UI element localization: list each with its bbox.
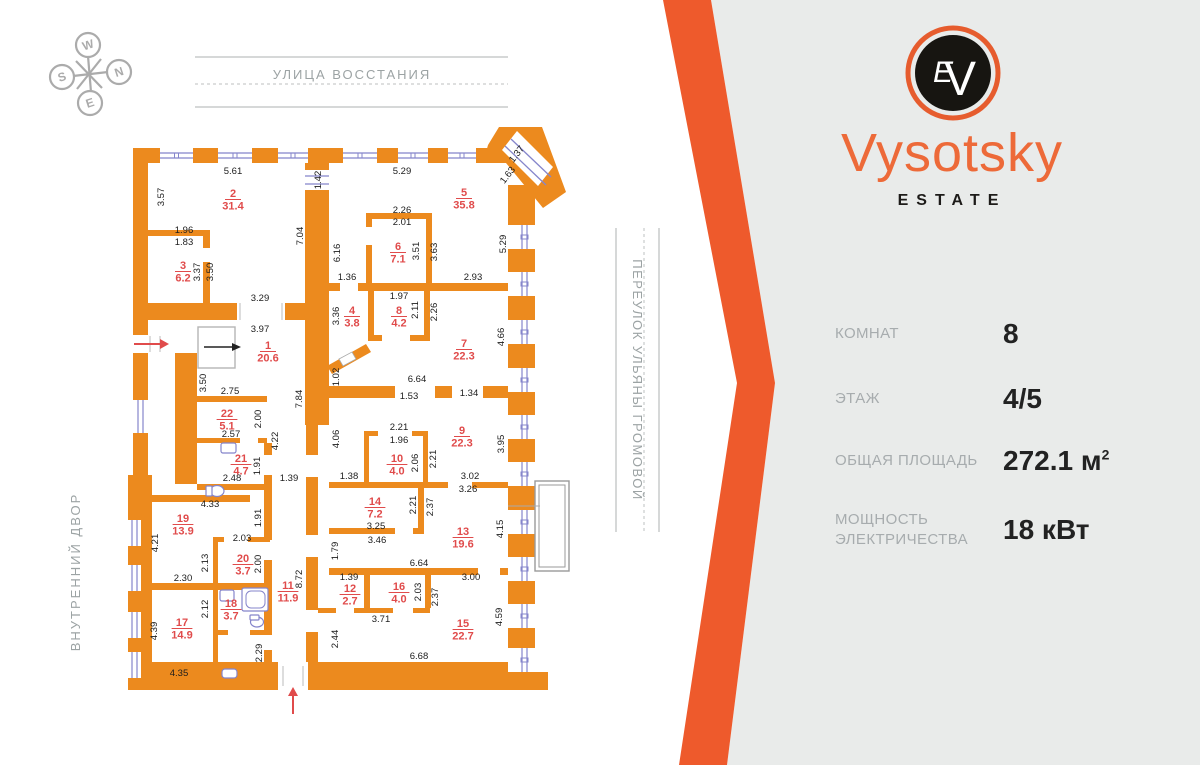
dimension-label: 2.13 (200, 554, 211, 573)
info-value: 8 (1003, 318, 1019, 350)
room-label: 1522.7 (452, 618, 473, 643)
room-label: 120.6 (257, 340, 278, 365)
room-number: 9 (459, 425, 465, 437)
dimension-label: 4.39 (149, 622, 160, 641)
dimension-label: 2.44 (330, 630, 341, 649)
dimension-label: 3.57 (156, 188, 167, 207)
window-gap (128, 612, 141, 638)
dimension-label: 1.96 (390, 435, 409, 446)
dimension-label: 3.26 (459, 484, 478, 495)
street-name-top: УЛИЦА ВОССТАНИЯ (273, 67, 432, 82)
dimension-label: 4.21 (150, 534, 161, 553)
wall (141, 495, 250, 502)
room-number: 2 (230, 188, 236, 200)
dimension-label: 1.83 (175, 237, 194, 248)
room-label: 1319.6 (452, 526, 473, 551)
wall (413, 608, 430, 613)
room-label: 225.1 (217, 408, 238, 433)
wall (366, 213, 372, 227)
dimension-label: 2.26 (429, 303, 440, 322)
dimension-label: 3.50 (205, 263, 216, 282)
room-number: 19 (177, 513, 189, 525)
wall (264, 650, 272, 662)
dimension-label: 2.21 (390, 422, 409, 433)
entrance-arrow-left-head (160, 339, 169, 349)
compass-letter-w: W (80, 36, 96, 53)
info-value: 18 кВт (1003, 514, 1090, 546)
dimension-label: 1.96 (175, 225, 194, 236)
dimension-label: 1.02 (331, 368, 342, 387)
room-number: 7 (461, 338, 467, 350)
compass-letter-n: N (113, 64, 126, 80)
brand-name: Vysotsky (802, 122, 1102, 184)
wall (329, 482, 448, 488)
room-label: 203.7 (233, 553, 254, 578)
room-label: 922.3 (451, 425, 472, 450)
brand-logo: E V (903, 22, 1003, 124)
room-number: 4 (349, 305, 356, 317)
dimension-label: 3.36 (331, 307, 342, 326)
floor-plan: W N S E УЛИЦА ВОССТАНИЯ ПЕРЕУЛОК УЛЬЯНЫ … (0, 0, 700, 765)
dimension-label: 2.11 (410, 301, 421, 319)
dimension-label: 5.61 (224, 166, 243, 177)
window-gap (448, 148, 476, 163)
dimension-label: 2.12 (200, 600, 211, 619)
sink-icon (222, 669, 237, 678)
wall (305, 163, 329, 425)
dimension-label: 2.30 (174, 573, 193, 584)
street-name-right: ПЕРЕУЛОК УЛЬЯНЫ ГРОМОВОЙ (630, 259, 645, 500)
dimension-label: 1.34 (460, 388, 479, 399)
window-gap (398, 148, 428, 163)
room-label: 164.0 (389, 581, 410, 606)
wall (175, 353, 197, 484)
info-label: КОМНАТ (835, 324, 1003, 344)
room-number: 13 (457, 526, 469, 538)
wall (128, 662, 278, 690)
wall (248, 537, 270, 542)
room-number: 16 (393, 581, 405, 593)
room-number: 22 (221, 408, 233, 420)
wall (354, 608, 393, 613)
room-area: 19.6 (452, 539, 473, 551)
dimension-label: 1.36 (338, 272, 357, 283)
dimension-label: 1.91 (252, 457, 263, 476)
wall (329, 386, 395, 398)
dimension-label: 4.06 (331, 430, 342, 449)
wall (266, 495, 270, 502)
dimension-label: 2.00 (253, 410, 264, 429)
wall (366, 245, 372, 289)
dimension-label: 6.64 (408, 374, 427, 385)
dimension-label: 4.59 (494, 608, 505, 627)
info-label: ОБЩАЯ ПЛОЩАДЬ (835, 451, 1003, 471)
info-row: ОБЩАЯ ПЛОЩАДЬ272.1 м2 (835, 445, 1180, 477)
dimension-label: 3.02 (461, 471, 480, 482)
info-row: ЭТАЖ4/5 (835, 383, 1180, 415)
info-value: 4/5 (1003, 383, 1042, 415)
window-gap (128, 652, 141, 678)
dimension-label: 4.22 (270, 432, 281, 451)
room-area: 3.8 (344, 318, 359, 330)
dimension-label: 7.84 (294, 390, 305, 409)
dimension-label: 2.37 (425, 498, 436, 517)
toilet-icon (250, 615, 259, 620)
wall (368, 335, 382, 341)
dimension-label: 4.66 (496, 328, 507, 347)
dimension-label: 4.15 (495, 520, 506, 539)
room-number: 8 (396, 305, 402, 317)
room-area: 22.7 (452, 631, 473, 643)
room-area: 11.9 (278, 593, 299, 605)
wall (306, 632, 318, 662)
wall (203, 230, 210, 248)
balcony (535, 481, 569, 571)
street-label-right: ПЕРЕУЛОК УЛЬЯНЫ ГРОМОВОЙ (616, 228, 659, 532)
room-number: 21 (235, 453, 247, 465)
room-area: 20.6 (257, 353, 278, 365)
window-gap (128, 565, 141, 591)
wall (472, 482, 509, 488)
room-label: 722.3 (453, 338, 474, 363)
room-area: 31.4 (222, 201, 244, 213)
dimension-label: 2.29 (254, 644, 265, 663)
dimension-label: 1.39 (340, 572, 359, 583)
sink-icon (221, 443, 236, 453)
compass-letter-e: E (84, 95, 96, 111)
dimension-label: 1.97 (390, 291, 409, 302)
wall (500, 568, 509, 575)
dimension-label: 3.00 (462, 572, 481, 583)
wall (364, 575, 370, 608)
dimension-label: 4.33 (201, 499, 220, 510)
room-number: 3 (180, 260, 186, 272)
dimension-label: 1.79 (330, 542, 341, 561)
dimension-label: 3.25 (367, 521, 386, 532)
room-number: 14 (369, 496, 382, 508)
dimension-label: 2.93 (464, 272, 483, 283)
hall-arrow-head (232, 343, 241, 351)
dimension-label: 3.51 (411, 242, 422, 261)
dimension-label: 3.71 (372, 614, 391, 625)
room-area: 35.8 (453, 200, 474, 212)
wall (250, 630, 270, 635)
toilet-icon (206, 486, 212, 496)
courtyard-label: ВНУТРЕННИЙ ДВОР (68, 493, 83, 652)
wall (318, 608, 336, 613)
diagonal-door (339, 352, 356, 366)
dimension-label: 2.75 (221, 386, 240, 397)
room-number: 11 (282, 580, 294, 592)
room-area: 7.2 (367, 509, 382, 521)
compass-letter-s: S (56, 69, 68, 85)
room-label: 214.7 (231, 453, 252, 478)
dimension-label: 3.50 (198, 374, 209, 393)
wall (306, 557, 318, 610)
window-gap (218, 148, 252, 163)
dimension-label: 2.00 (253, 555, 264, 574)
wall (358, 283, 508, 291)
wall (413, 528, 424, 534)
room-number: 10 (391, 453, 403, 465)
window-gap (133, 400, 148, 433)
compass-rose: W N S E (50, 33, 131, 115)
room-number: 15 (457, 618, 469, 630)
dimension-label: 2.21 (428, 450, 439, 469)
dimension-label: 3.46 (368, 535, 387, 546)
room-number: 12 (344, 583, 356, 595)
dimension-label: 3.95 (496, 435, 507, 454)
dimension-label: 8.72 (294, 570, 305, 589)
room-label: 535.8 (453, 187, 474, 212)
info-label: МОЩНОСТЬ ЭЛЕКТРИЧЕСТВА (835, 510, 1003, 549)
room-area: 2.7 (342, 596, 357, 608)
room-area: 22.3 (453, 351, 474, 363)
room-area: 3.7 (223, 611, 238, 623)
dimension-label: 6.64 (410, 558, 429, 569)
room-area: 4.2 (391, 318, 406, 330)
plan-dimensions: 5.613.571.425.291.371.632.262.015.291.96… (149, 144, 527, 679)
dimension-label: 6.16 (332, 244, 343, 263)
brand-subtitle: ESTATE (802, 192, 1102, 210)
dimension-label: 3.97 (251, 324, 270, 335)
wall (213, 590, 218, 662)
dimension-label: 3.29 (251, 293, 270, 304)
dimension-label: 2.06 (410, 454, 421, 473)
room-label: 183.7 (221, 598, 242, 623)
room-area: 4.7 (233, 466, 248, 478)
room-label: 104.0 (387, 453, 408, 478)
room-area: 3.7 (235, 566, 250, 578)
dimension-label: 2.03 (413, 583, 424, 602)
room-label: 67.1 (390, 241, 406, 266)
room-label: 36.2 (175, 260, 191, 285)
wall (368, 291, 374, 341)
room-number: 17 (176, 617, 188, 629)
wall (213, 630, 228, 635)
room-number: 1 (265, 340, 271, 352)
street-label-top: УЛИЦА ВОССТАНИЯ (195, 57, 508, 107)
wall (258, 438, 267, 443)
dimension-label: 2.03 (233, 533, 252, 544)
logo-monogram-v: V (944, 53, 976, 106)
room-area: 4.0 (391, 594, 406, 606)
dimension-label: 5.29 (498, 235, 509, 254)
info-label: ЭТАЖ (835, 389, 1003, 409)
dimension-label: 1.91 (253, 509, 264, 528)
room-area: 13.9 (172, 526, 193, 538)
dimension-label: 3.63 (429, 243, 440, 262)
room-label: 231.4 (222, 188, 244, 213)
dimension-label: 6.68 (410, 651, 429, 662)
dimension-label: 1.53 (400, 391, 419, 402)
wall (483, 386, 509, 398)
room-area: 7.1 (390, 254, 405, 266)
room-label: 1714.9 (171, 617, 192, 642)
room-number: 20 (237, 553, 249, 565)
entrance-arrow-bottom-head (288, 687, 298, 696)
dimension-label: 2.26 (393, 205, 412, 216)
window-gap (160, 148, 193, 163)
window-gap (343, 148, 377, 163)
room-area: 5.1 (219, 421, 234, 433)
info-row: КОМНАТ8 (835, 318, 1180, 350)
dimension-label: 7.04 (295, 227, 306, 246)
room-area: 14.9 (171, 630, 192, 642)
dimension-label: 3.37 (192, 263, 203, 282)
wall (364, 431, 369, 487)
dimension-label: 1.42 (313, 171, 324, 190)
info-row: МОЩНОСТЬ ЭЛЕКТРИЧЕСТВА18 кВт (835, 510, 1180, 549)
wall (410, 335, 430, 341)
wall (329, 283, 340, 291)
dimension-label: 1.39 (280, 473, 299, 484)
room-label: 84.2 (391, 305, 407, 330)
dimension-label: 4.35 (170, 668, 189, 679)
room-area: 6.2 (175, 273, 190, 285)
dimension-label: 2.21 (408, 496, 419, 515)
room-area: 22.3 (451, 438, 472, 450)
dimension-label: 5.29 (393, 166, 412, 177)
room-number: 5 (461, 187, 467, 199)
room-number: 18 (225, 598, 237, 610)
wall (285, 303, 312, 320)
dimension-label: 1.38 (340, 471, 359, 482)
wall (306, 477, 318, 535)
room-label: 1913.9 (172, 513, 193, 538)
dimension-label: 2.37 (430, 588, 441, 607)
real-estate-flyer: { "compass": {"letters": ["W","N","S","E… (0, 0, 1200, 765)
room-label: 43.8 (344, 305, 360, 330)
room-number: 6 (395, 241, 401, 253)
wall (133, 303, 237, 320)
info-value: 272.1 м2 (1003, 445, 1109, 477)
room-label: 147.2 (365, 496, 386, 521)
wall (306, 425, 318, 455)
window-gap (128, 520, 141, 546)
room-label: 122.7 (340, 583, 361, 608)
dimension-label: 2.01 (393, 217, 412, 228)
room-area: 4.0 (389, 466, 404, 478)
window-gap (278, 148, 308, 163)
wall (435, 386, 452, 398)
wall (213, 537, 218, 590)
